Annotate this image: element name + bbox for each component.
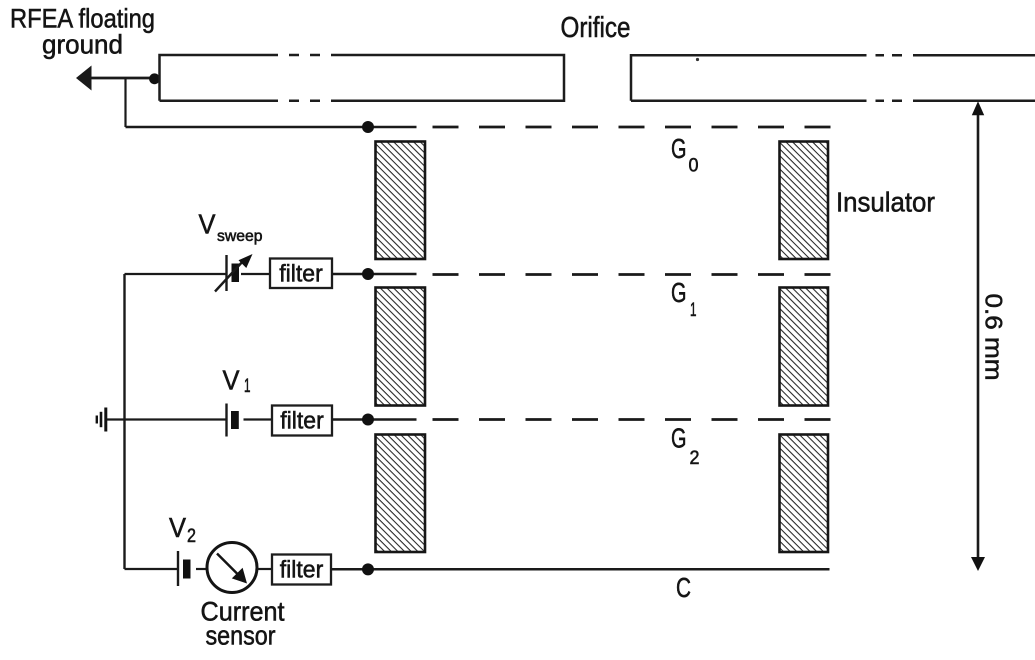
svg-text:G: G [671, 277, 687, 308]
svg-text:V: V [199, 209, 216, 240]
svg-text:2: 2 [187, 526, 196, 547]
svg-text:2: 2 [690, 448, 700, 469]
svg-text:1: 1 [244, 376, 251, 397]
svg-text:Insulator: Insulator [836, 187, 935, 218]
svg-text:filter: filter [279, 261, 323, 288]
svg-text:V: V [169, 512, 186, 543]
svg-text:sensor: sensor [206, 621, 276, 651]
svg-text:1: 1 [690, 300, 697, 321]
svg-text:sweep: sweep [217, 228, 263, 245]
svg-text:filter: filter [280, 408, 324, 435]
svg-text:C: C [676, 572, 691, 603]
svg-text:filter: filter [280, 557, 324, 584]
svg-text:G: G [671, 133, 687, 164]
svg-text:ground: ground [42, 30, 123, 60]
svg-text:Orifice: Orifice [561, 12, 631, 44]
svg-text:0.6 mm: 0.6 mm [980, 294, 1007, 381]
svg-text:G: G [671, 423, 687, 454]
svg-text:V: V [223, 365, 240, 396]
svg-text:0: 0 [689, 156, 699, 177]
